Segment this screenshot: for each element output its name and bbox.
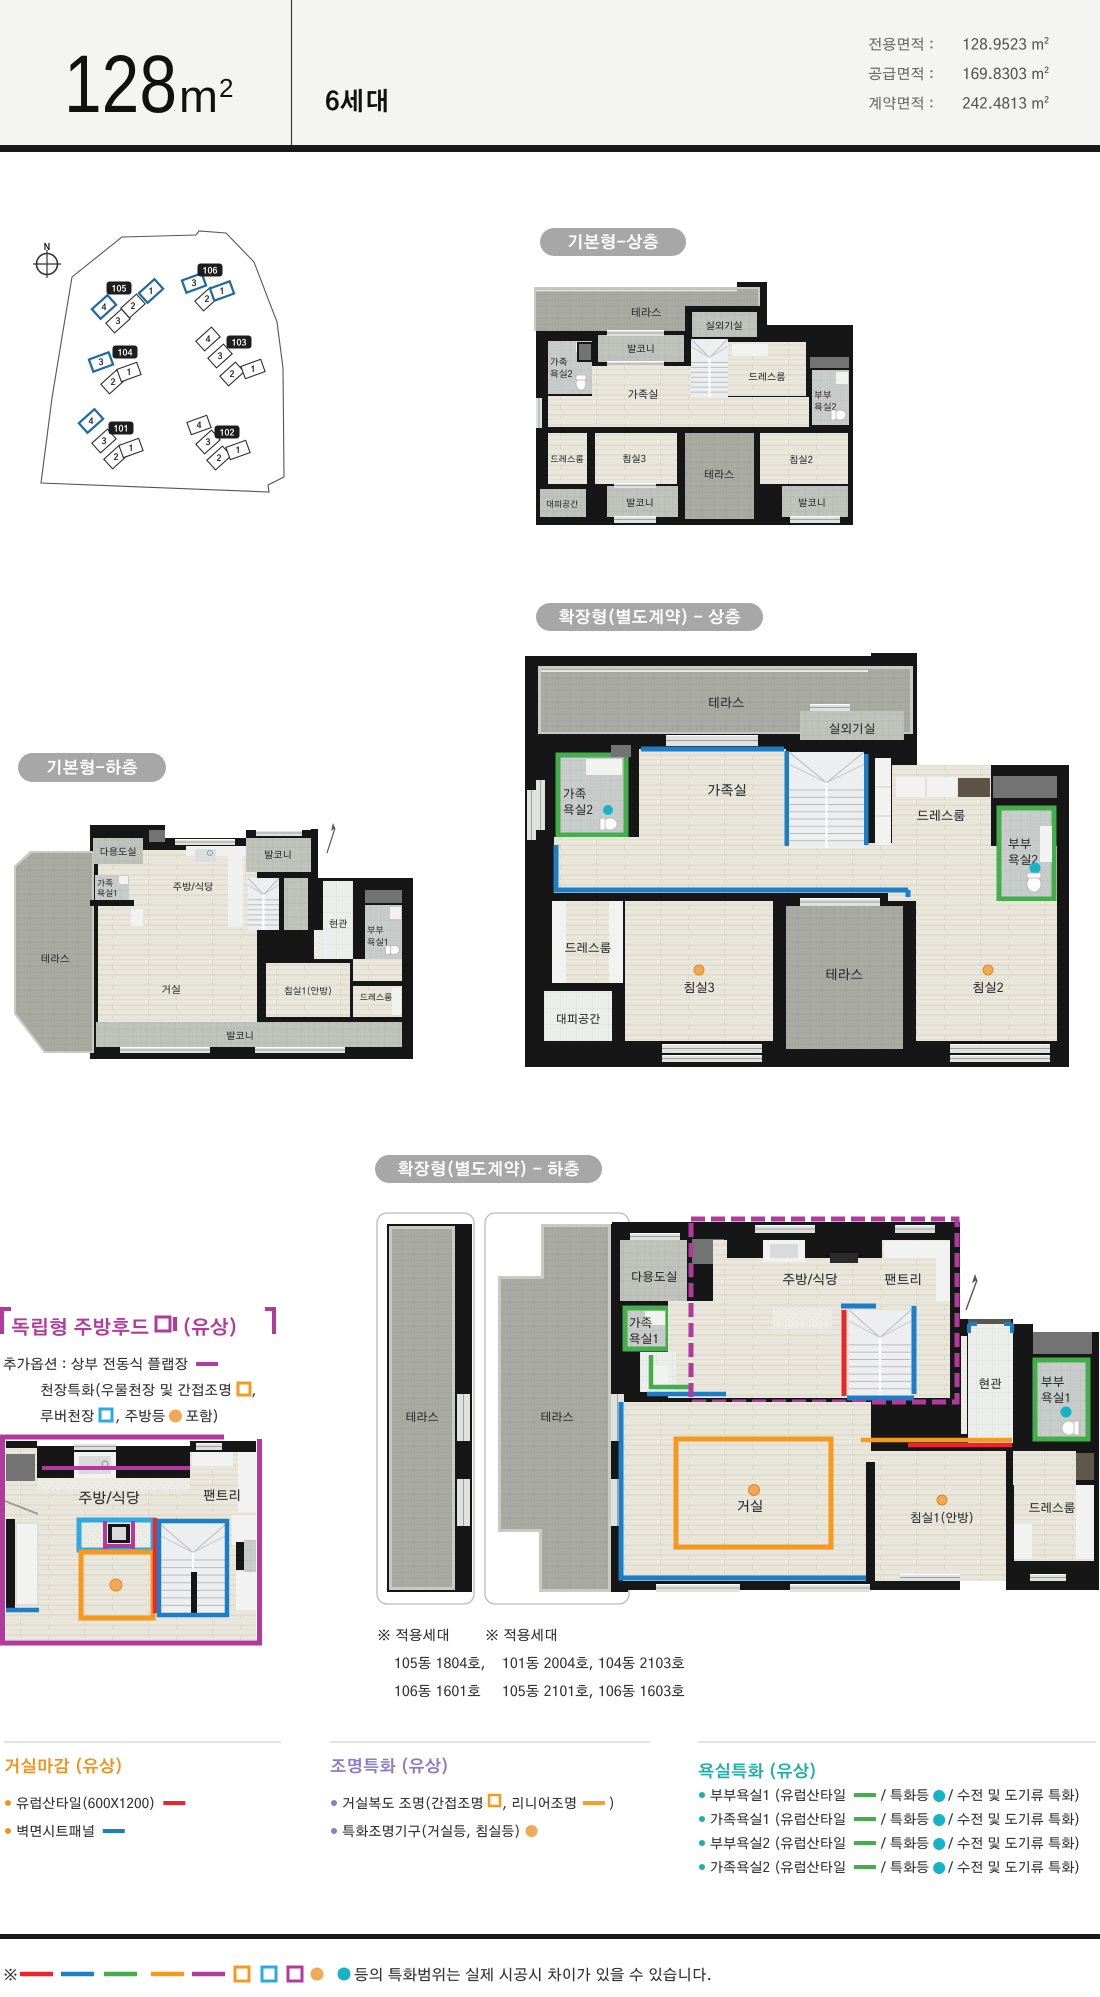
svg-text:128: 128 — [64, 39, 177, 130]
svg-text:m: m — [179, 71, 218, 122]
svg-text:2: 2 — [219, 73, 233, 103]
